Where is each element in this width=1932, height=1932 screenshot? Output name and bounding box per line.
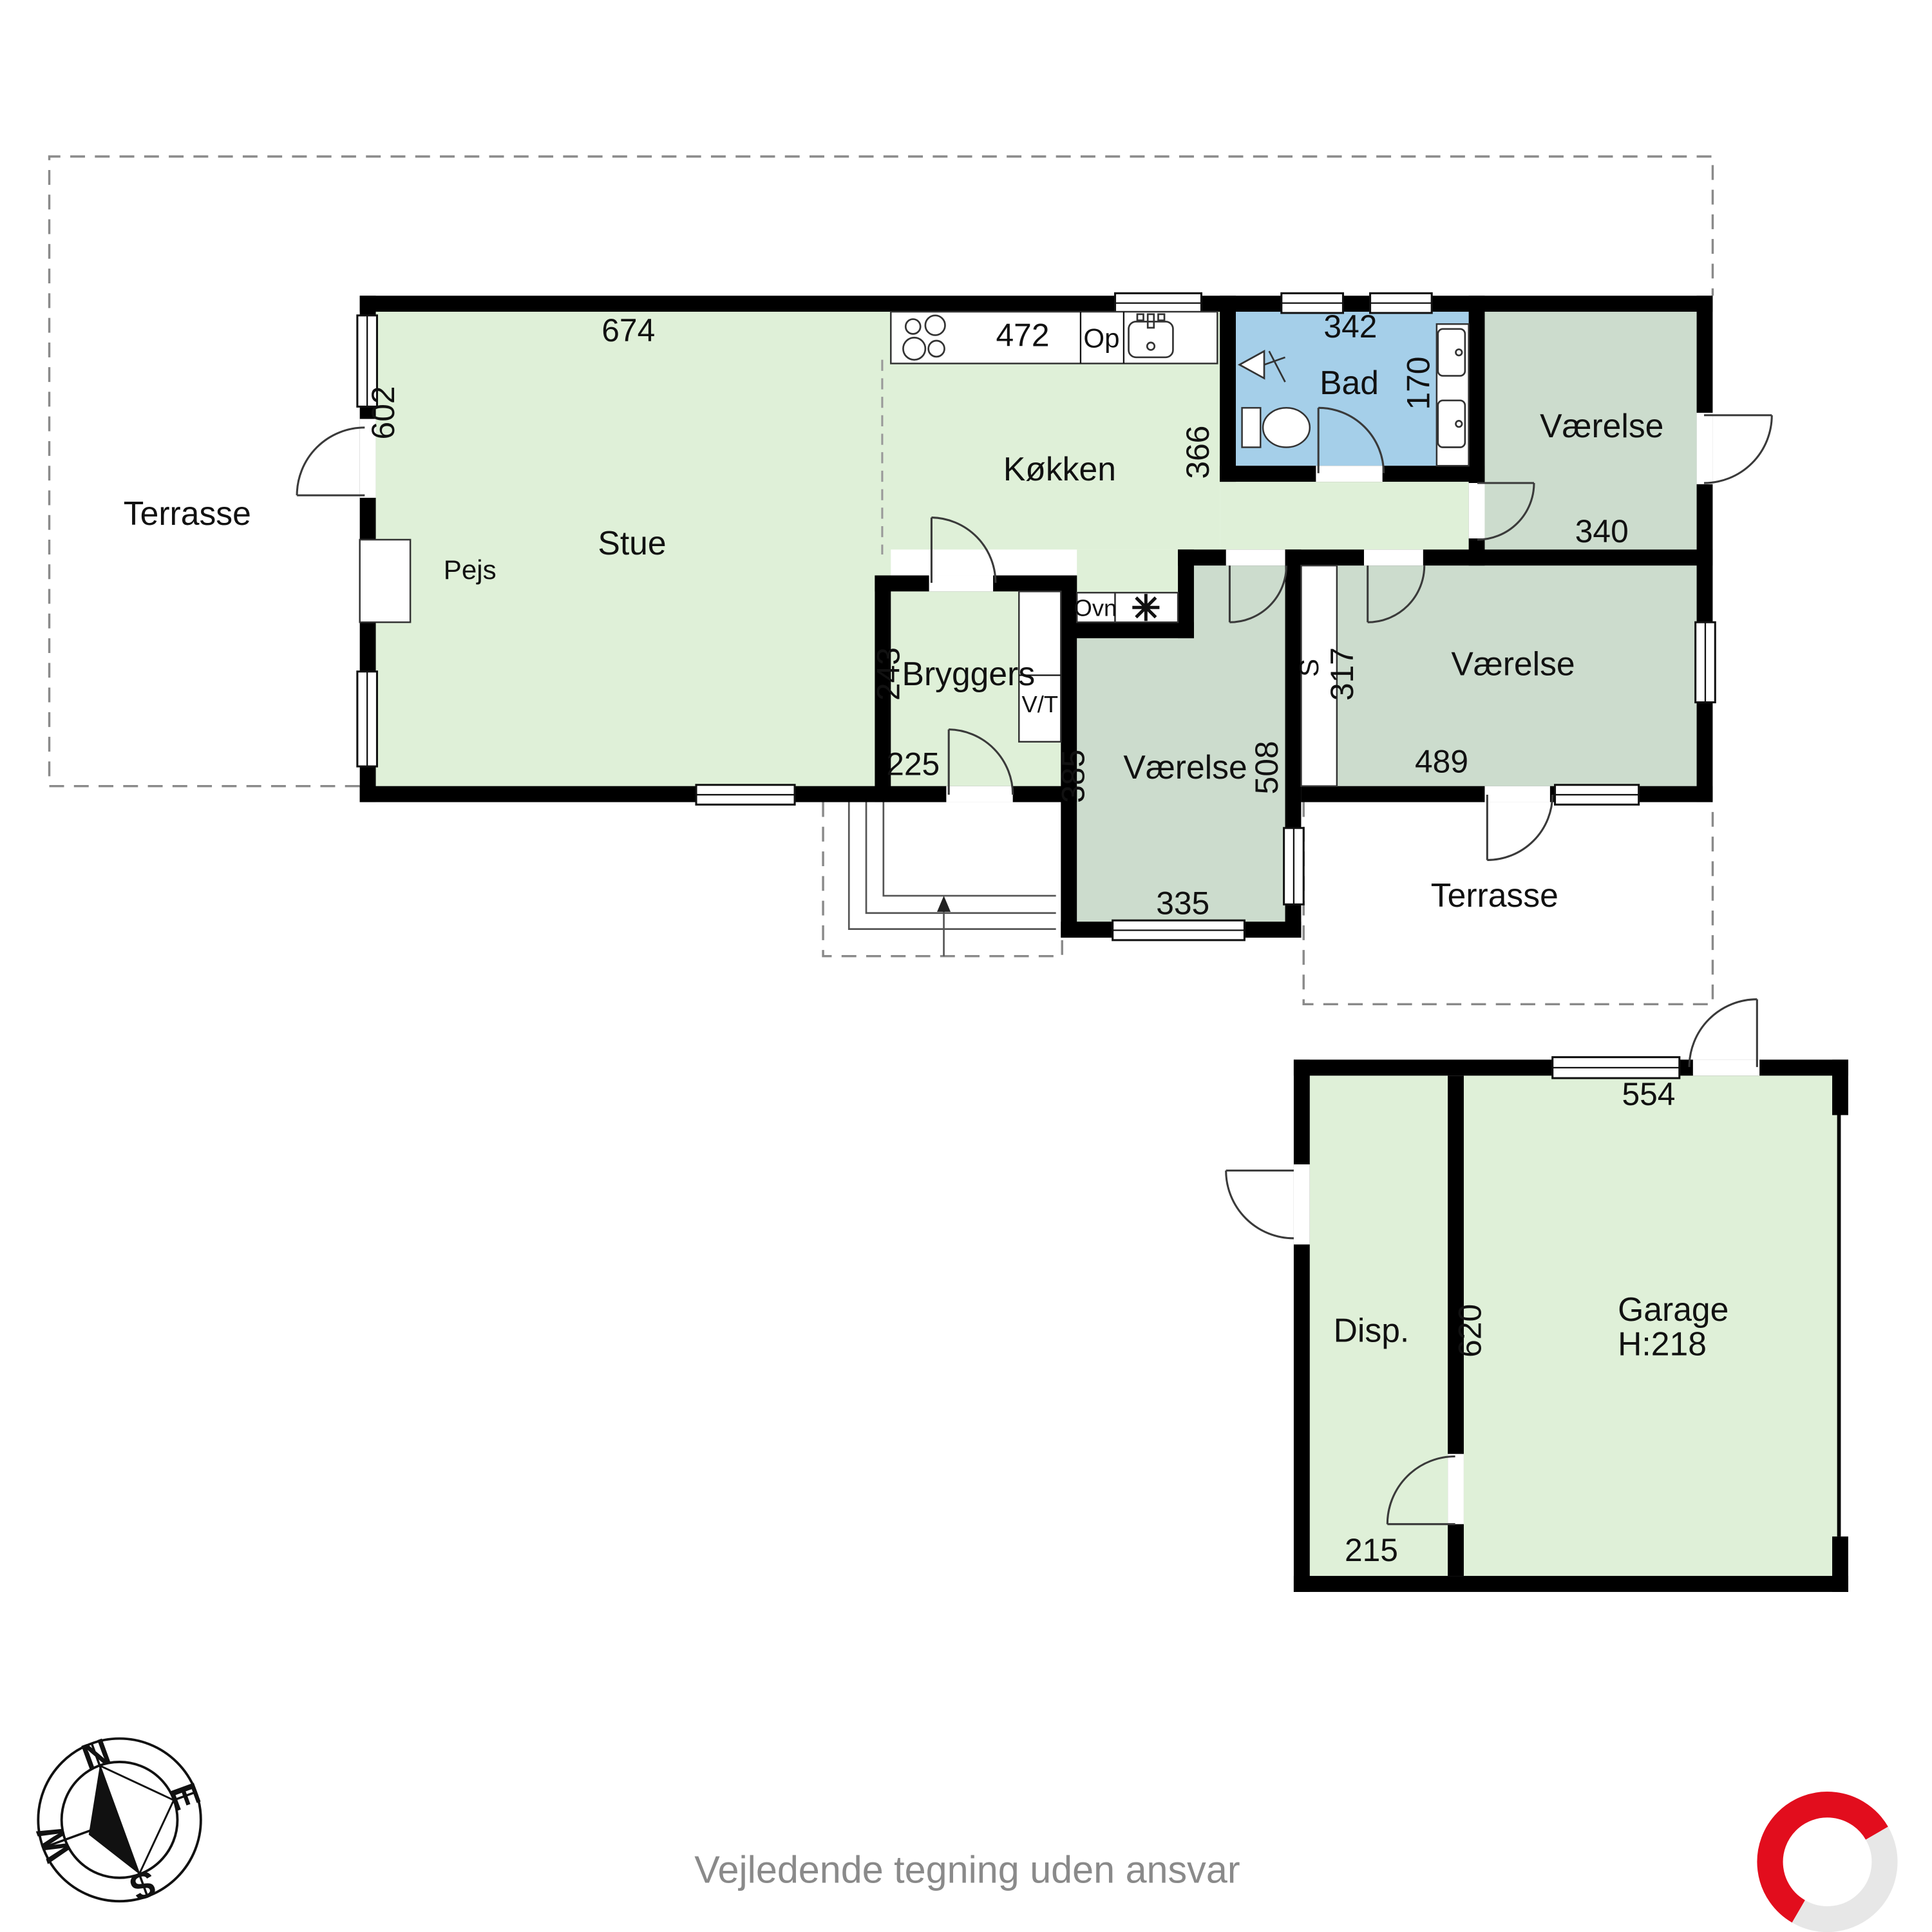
window: [1696, 622, 1716, 702]
terrasse-se-label: Terrasse: [1431, 876, 1558, 914]
vaerelse-mid-label: Værelse: [1123, 748, 1247, 786]
window: [1553, 1057, 1680, 1079]
door-terrace-west: [297, 428, 365, 495]
dim-bad-height: 170: [1400, 357, 1436, 410]
dim-stue-height: 602: [365, 386, 401, 439]
window: [1370, 293, 1432, 313]
fan-icon: [1132, 594, 1159, 621]
door-vaerelse-e-terrace: [1487, 795, 1552, 860]
disp-label: Disp.: [1334, 1312, 1410, 1349]
toilet-icon: [1242, 408, 1310, 447]
dim-bad-width: 342: [1323, 308, 1377, 345]
door-disp-west: [1226, 1171, 1294, 1238]
bad-label: Bad: [1320, 364, 1379, 401]
kokken-floor-ext: [1077, 549, 1178, 596]
dim-stue-width: 674: [601, 312, 655, 348]
vaerelse-ne-label: Værelse: [1540, 407, 1663, 444]
terrasse-nw-label: Terrasse: [124, 495, 251, 532]
dim-vaerelse-mid-width: 335: [1156, 885, 1209, 922]
brand-logo: [1770, 1804, 1885, 1919]
dim-kokken-height: 366: [1180, 426, 1216, 479]
ovn-label: Ovn: [1074, 595, 1117, 621]
window: [357, 672, 377, 766]
window: [1115, 293, 1202, 313]
door-vaerelse-ne-east: [1704, 415, 1772, 483]
skab-label: S: [1294, 659, 1324, 677]
door-garage-north: [1689, 999, 1757, 1067]
dim-vaerelse-mid-right: 508: [1249, 741, 1285, 794]
logo-gray-arc: [1799, 1833, 1885, 1920]
hall-floor: [1220, 482, 1468, 549]
floorplan-drawing: 674 602 Stue Pejs Terrasse 472 Op Køkken…: [0, 0, 1932, 1932]
floorplan-page: 674 602 Stue Pejs Terrasse 472 Op Køkken…: [0, 0, 1932, 1932]
entry-steps: [849, 802, 1056, 956]
window: [1555, 785, 1639, 805]
garage-label: Garage: [1618, 1291, 1728, 1328]
dim-disp-width: 215: [1345, 1532, 1398, 1568]
dim-garage-depth: 620: [1452, 1304, 1488, 1358]
stue-label: Stue: [598, 524, 666, 562]
dim-vaerelse-e-height: 317: [1324, 647, 1360, 701]
op-label: Op: [1083, 323, 1119, 354]
disclaimer-text: Vejledende tegning uden ansvar: [694, 1848, 1240, 1891]
porch-outline: [823, 802, 1062, 956]
pejs-label: Pejs: [444, 554, 497, 585]
compass-rose: N E S W: [29, 1730, 209, 1908]
dim-kokken-width: 472: [996, 317, 1050, 354]
room-fills: [376, 312, 1839, 1576]
garage-height-label: H:218: [1618, 1325, 1707, 1363]
vaerelse-e-label: Værelse: [1451, 645, 1575, 682]
fireplace: [360, 540, 410, 622]
dim-bryggers-height: 243: [871, 647, 907, 701]
vt-label: V/T: [1022, 691, 1059, 717]
dim-garage-width: 554: [1622, 1076, 1675, 1112]
kokken-label: Køkken: [1003, 450, 1116, 488]
window: [1284, 828, 1304, 905]
window: [1113, 920, 1245, 940]
compass-w: W: [29, 1819, 80, 1867]
dim-vaerelse-e-width: 489: [1415, 744, 1468, 780]
dim-vaerelse-mid-left: 385: [1056, 750, 1092, 803]
bryggers-label: Bryggers: [902, 655, 1036, 692]
dim-vaerelse-ne-width: 340: [1575, 513, 1629, 549]
window: [696, 785, 795, 805]
dim-bryggers-width: 225: [886, 746, 940, 782]
